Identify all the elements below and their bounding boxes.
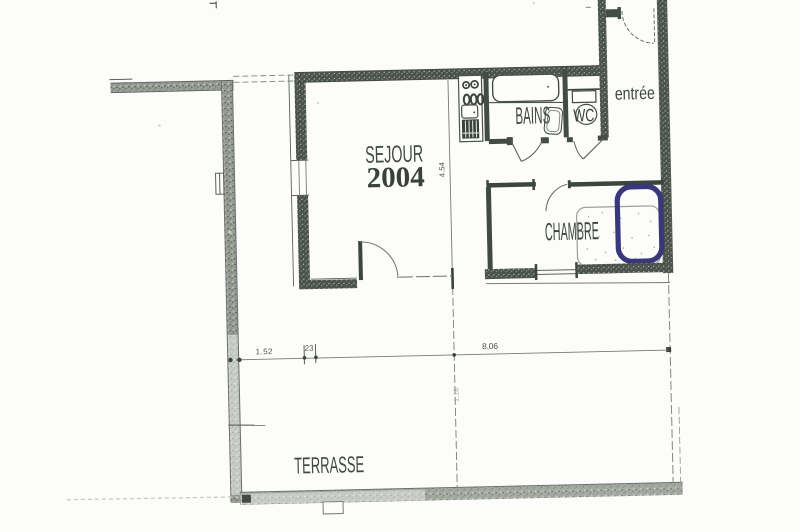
svg-text:8.06: 8.06 xyxy=(482,341,498,351)
svg-text:1.18: 1.18 xyxy=(453,388,460,402)
svg-text:entrée: entrée xyxy=(615,83,655,104)
svg-text:1.52: 1.52 xyxy=(255,347,273,356)
svg-text:2004: 2004 xyxy=(366,161,425,194)
svg-text:23: 23 xyxy=(304,344,314,353)
svg-text:CHAMBRE: CHAMBRE xyxy=(545,217,600,246)
svg-text:4.54: 4.54 xyxy=(437,162,446,177)
svg-text:WC: WC xyxy=(573,105,594,125)
svg-text:TERRASSE: TERRASSE xyxy=(294,451,365,479)
